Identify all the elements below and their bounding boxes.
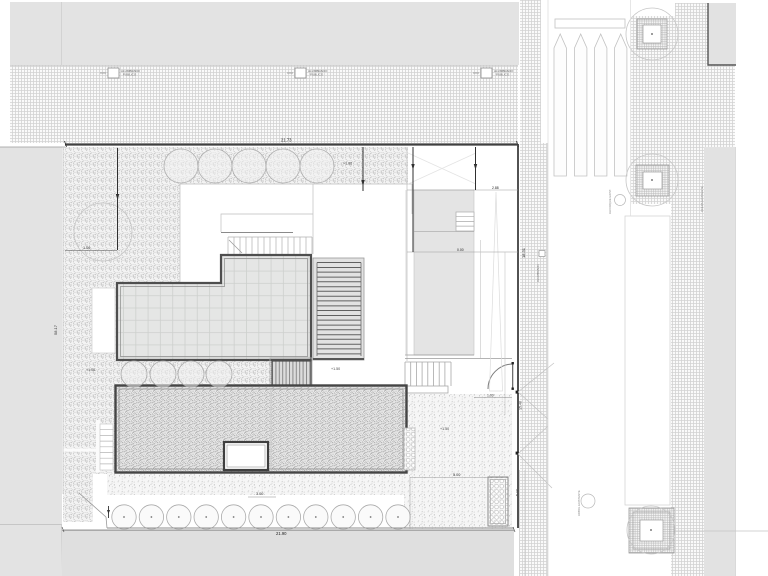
svg-text:3.00: 3.00 [256, 492, 263, 496]
svg-text:18.31: 18.31 [521, 247, 526, 258]
svg-text:ALUMBRADO: ALUMBRADO [536, 263, 540, 282]
svg-text:21.73: 21.73 [281, 138, 292, 143]
svg-text:2.88: 2.88 [492, 186, 499, 190]
svg-text:ALCORQUE EXIST.: ALCORQUE EXIST. [608, 189, 612, 214]
svg-text:5.00: 5.00 [453, 473, 460, 477]
svg-text:0.00: 0.00 [457, 248, 464, 252]
svg-text:15.40: 15.40 [519, 401, 523, 410]
svg-text:ACERA EXISTENTE: ACERA EXISTENTE [700, 186, 704, 212]
svg-text:PUBLICO: PUBLICO [123, 73, 137, 77]
svg-text:PUBLICO: PUBLICO [310, 73, 324, 77]
svg-text:1.06: 1.06 [83, 246, 90, 250]
svg-text:+1.50: +1.50 [331, 367, 340, 371]
svg-text:+1.06: +1.06 [86, 368, 95, 372]
svg-text:+1.06: +1.06 [343, 162, 352, 166]
svg-text:58.17: 58.17 [53, 324, 58, 335]
svg-text:21.90: 21.90 [276, 531, 287, 536]
svg-text:ARBOL EXISTENTE: ARBOL EXISTENTE [577, 490, 581, 516]
svg-text:PUBLICO: PUBLICO [496, 73, 510, 77]
svg-text:+1.50: +1.50 [440, 427, 449, 431]
svg-text:5.07: 5.07 [516, 489, 520, 496]
svg-text:1.00: 1.00 [487, 394, 494, 398]
